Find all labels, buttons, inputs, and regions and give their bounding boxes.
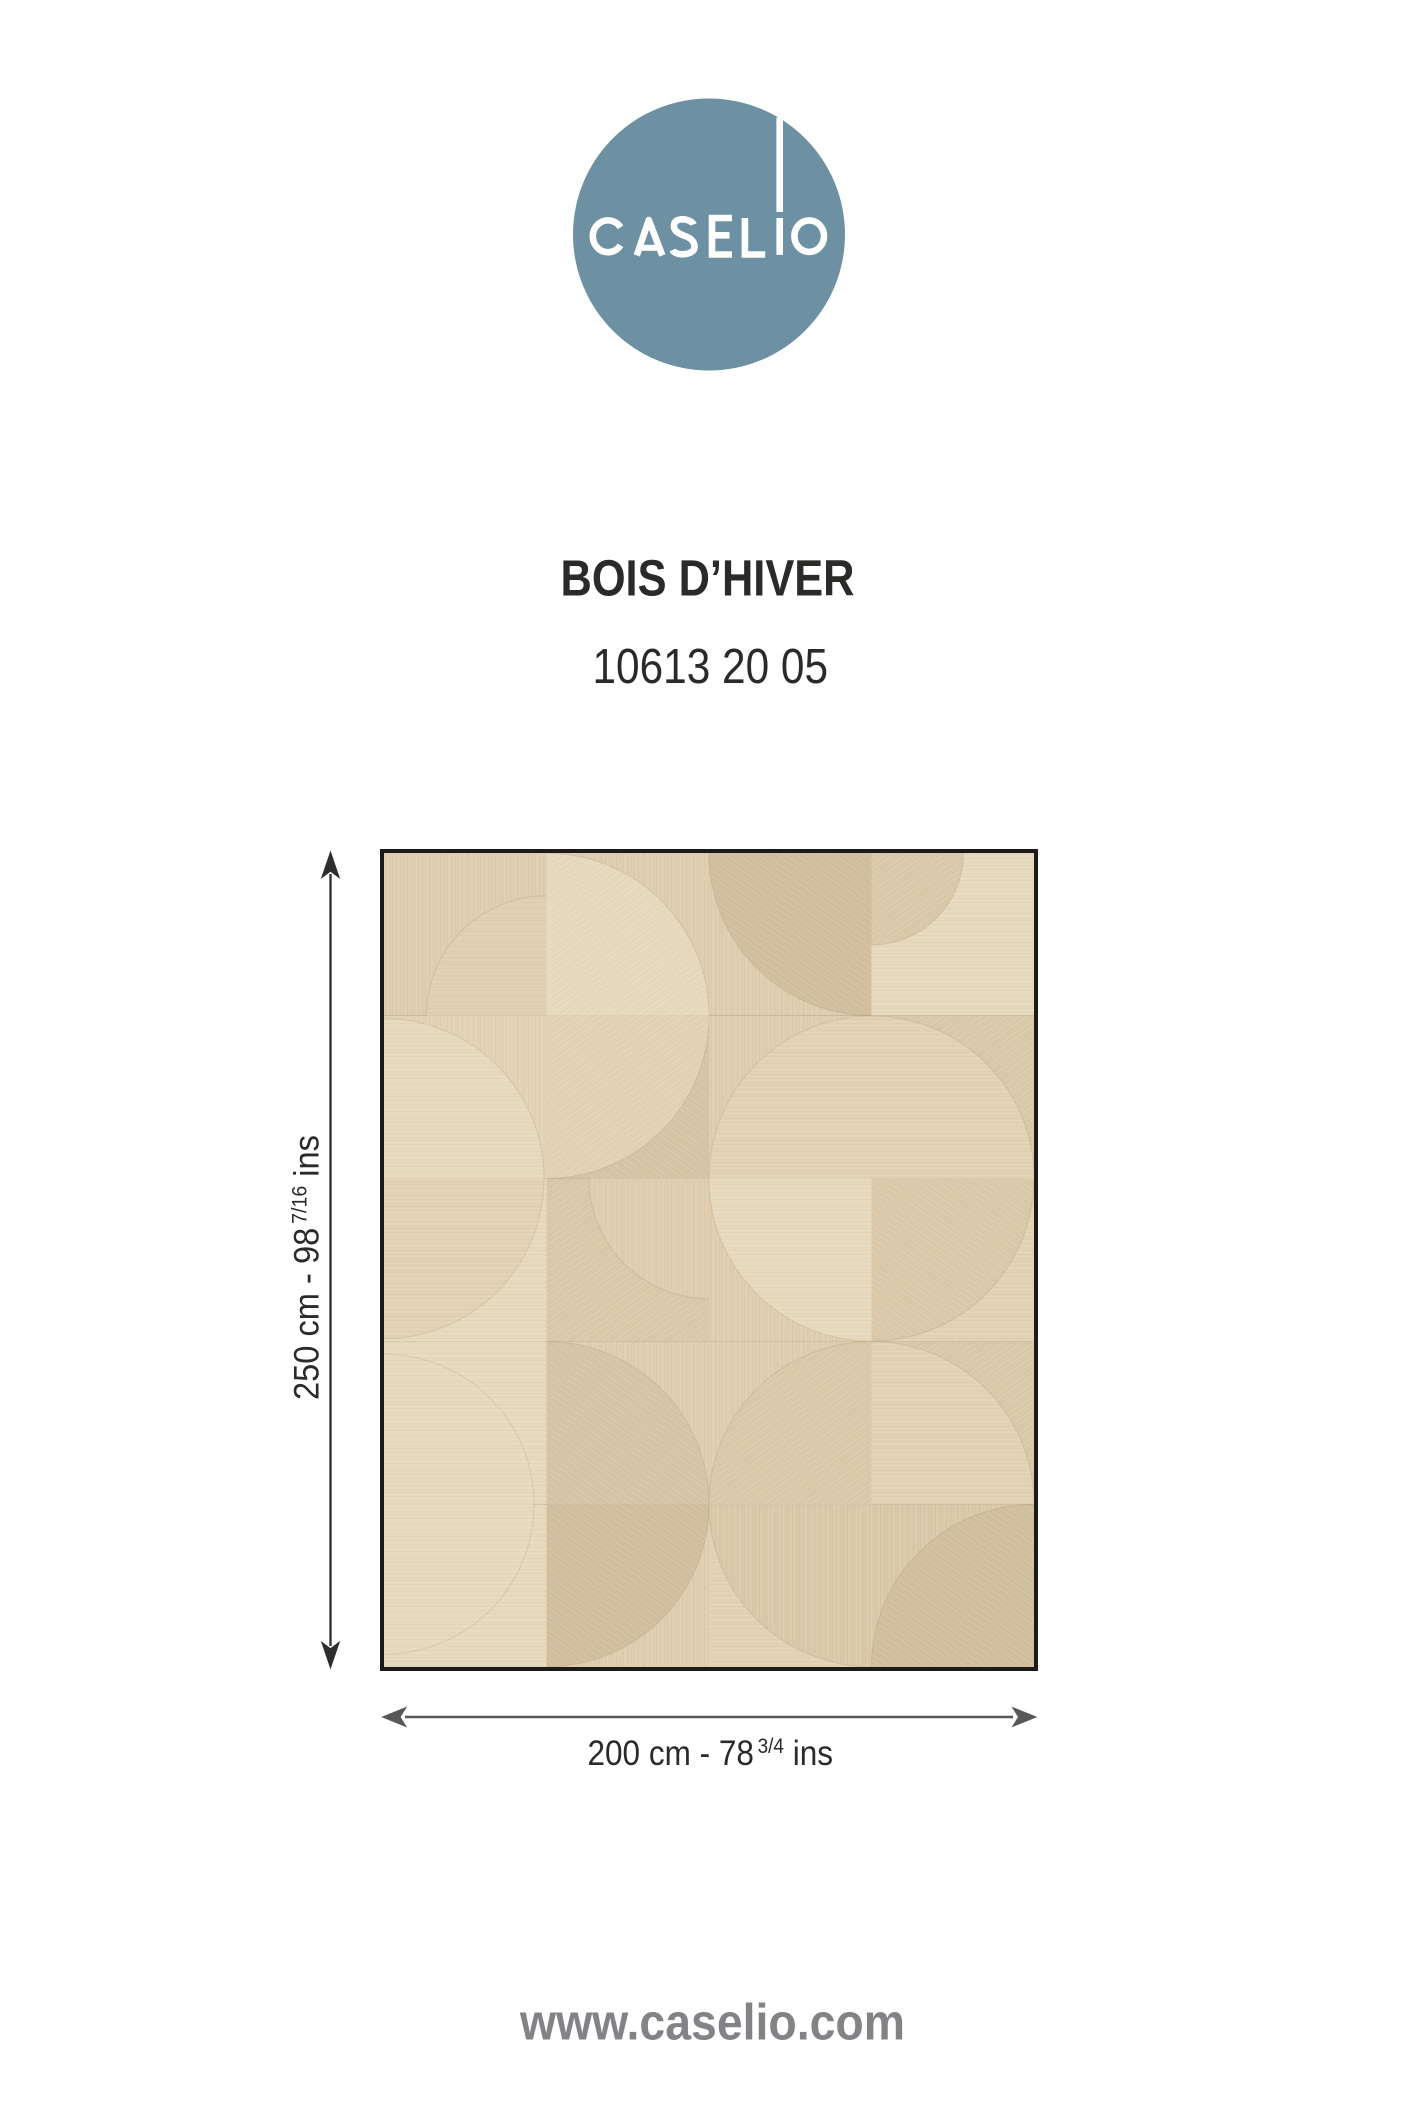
svg-text:200 cm - 78 3/4 ins: 200 cm - 78 3/4 ins: [588, 1734, 834, 1773]
svg-text:10613 20 05: 10613 20 05: [593, 640, 829, 694]
svg-text:250 cm - 98 7/16 ins: 250 cm - 98 7/16 ins: [288, 1135, 327, 1400]
svg-text:BOIS D’HIVER: BOIS D’HIVER: [561, 550, 855, 607]
svg-text:www.caselio.com: www.caselio.com: [519, 1994, 905, 2051]
